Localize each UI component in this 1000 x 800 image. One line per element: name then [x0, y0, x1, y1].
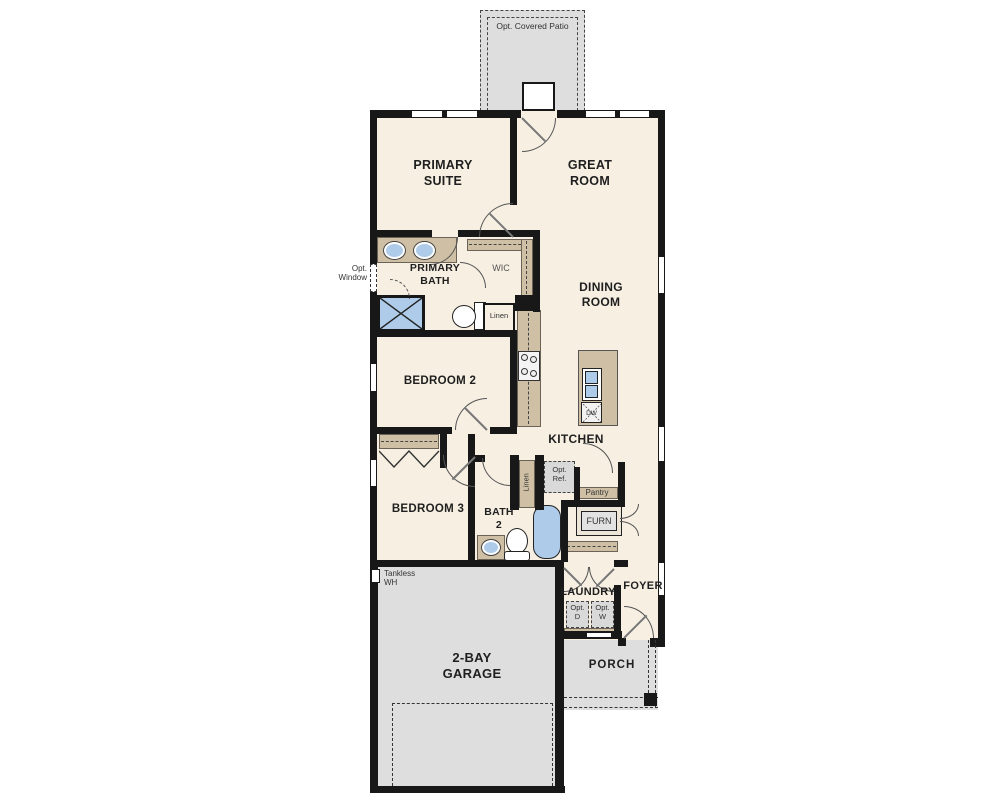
furnace-label: FURN	[581, 516, 617, 526]
bedroom3-closet-rod	[381, 441, 437, 442]
room-label-primary-bath: PRIMARY BATH	[399, 262, 471, 288]
room-label-great-room: GREAT ROOM	[558, 158, 622, 189]
room-label-foyer: FOYER	[622, 580, 664, 594]
wall	[561, 500, 568, 562]
wall	[377, 427, 452, 434]
wall	[370, 560, 564, 567]
wall	[561, 500, 624, 507]
garage-wall	[555, 567, 564, 793]
window	[370, 363, 377, 392]
bath2-sink	[482, 540, 500, 555]
garage-wall	[370, 786, 565, 793]
floor-plan: Opt. Covered Patio DW Opt. Ref.	[0, 0, 1000, 800]
room-label-laundry: LAUNDRY	[558, 586, 618, 600]
window	[411, 110, 443, 118]
room-label-kitchen: KITCHEN	[544, 432, 608, 447]
room-label-wic: WIC	[487, 263, 515, 273]
window	[658, 256, 665, 294]
toilet-bowl	[452, 305, 476, 328]
room-label-dining: DINING ROOM	[570, 280, 632, 310]
wall	[468, 434, 475, 567]
dishwasher-label: DW	[581, 410, 602, 417]
optional-refrigerator-label: Opt. Ref.	[546, 466, 573, 483]
porch-post	[644, 693, 657, 706]
linen-label: Linen	[483, 312, 515, 321]
wall	[650, 638, 665, 647]
tankless-water-heater-label: Tankless WH	[384, 569, 428, 587]
window	[586, 632, 612, 638]
stove-burner	[530, 370, 537, 377]
optional-washer-label: Opt. W	[592, 604, 613, 621]
vanity-sink	[384, 242, 405, 259]
wall	[614, 560, 628, 567]
stove-burner	[530, 356, 537, 363]
tankless-water-heater	[371, 569, 380, 583]
shower-x-icon	[380, 298, 422, 329]
island-sink-basin	[585, 371, 598, 384]
wall	[510, 118, 517, 205]
wall	[535, 455, 544, 510]
patio-door-panel	[522, 82, 555, 111]
porch-edge	[648, 640, 649, 698]
optional-window	[370, 264, 377, 292]
window	[619, 110, 650, 118]
wall	[510, 455, 519, 510]
stove-burner	[521, 368, 528, 375]
porch-edge	[564, 707, 658, 708]
patio-door-opening	[521, 110, 557, 118]
linen2-label: Linen	[523, 461, 532, 503]
window	[446, 110, 478, 118]
garage-wall	[370, 567, 378, 793]
island-sink-basin	[585, 385, 598, 398]
wall	[510, 330, 517, 434]
wall	[515, 295, 540, 311]
garage-door-outline	[392, 703, 553, 786]
patio-label: Opt. Covered Patio	[487, 22, 578, 32]
window	[370, 459, 377, 487]
room-label-bedroom2: BEDROOM 2	[398, 374, 482, 388]
stove-burner	[521, 354, 528, 361]
wall	[377, 230, 432, 237]
bathtub	[533, 505, 561, 559]
room-label-porch: PORCH	[586, 658, 638, 672]
room-label-bedroom3: BEDROOM 3	[386, 502, 470, 516]
furnace-shelf-rod	[567, 546, 616, 547]
opt-window-label: Opt. Window	[329, 264, 367, 282]
room-label-bath2: BATH 2	[482, 506, 516, 532]
wall	[618, 638, 626, 646]
room-label-primary-suite: PRIMARY SUITE	[405, 158, 481, 189]
optional-dryer-label: Opt. D	[567, 604, 588, 621]
window	[658, 426, 665, 462]
pantry-label: Pantry	[576, 488, 618, 497]
bifold-doors-icon	[379, 450, 440, 468]
room-label-garage: 2-BAY GARAGE	[424, 650, 520, 683]
window	[585, 110, 616, 118]
wall	[490, 427, 517, 434]
wall	[370, 110, 377, 567]
